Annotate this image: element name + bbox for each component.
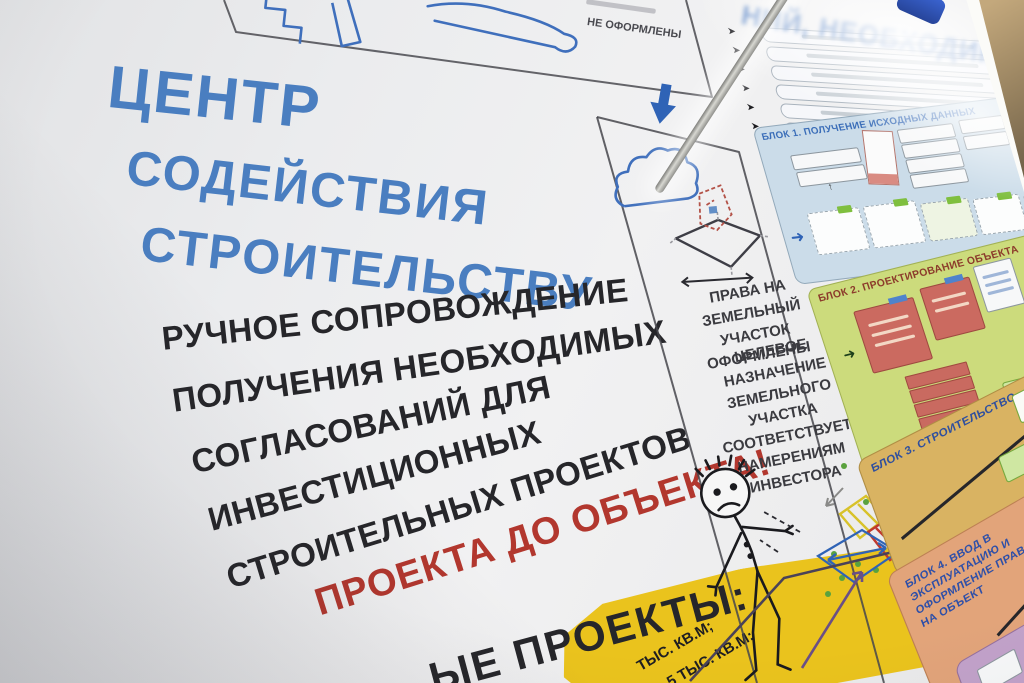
blue-arrow-icon (788, 226, 807, 248)
flow-box-dashed (807, 207, 871, 255)
flow-box (973, 257, 1024, 312)
flow-box-red (919, 276, 986, 340)
flow-box-red (853, 297, 933, 374)
dark-arrow-icon (841, 344, 858, 364)
flow-box-dashed (863, 200, 927, 248)
flow-box-dashed (972, 194, 1024, 236)
document-sketch (862, 130, 900, 185)
flow-box (962, 131, 1010, 150)
flow-box (1011, 374, 1024, 424)
flow-box-dashed (920, 198, 979, 242)
poster-photo: ЦЕНТР СОДЕЙСТВИЯ СТРОИТЕЛЬСТВУ РУЧНОЕ СО… (0, 0, 1024, 683)
flow-box (976, 648, 1023, 683)
